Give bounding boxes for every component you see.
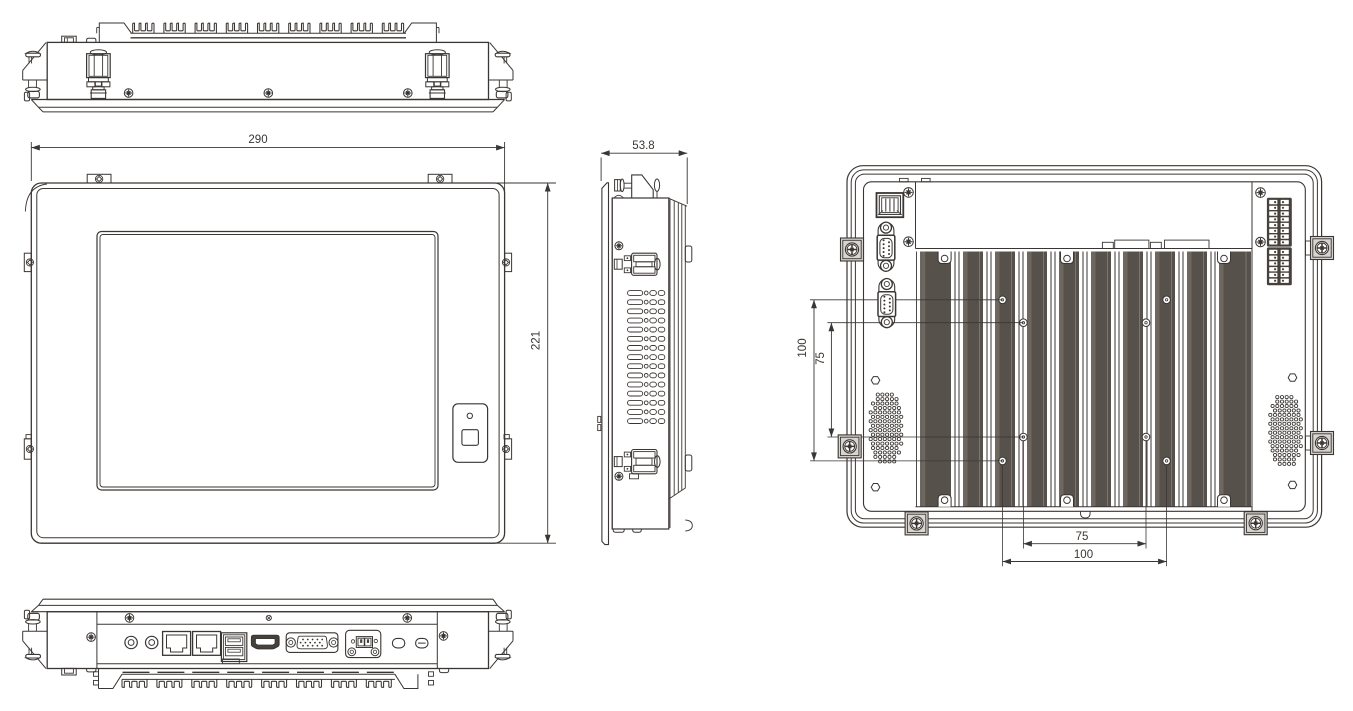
- svg-text:75: 75: [815, 352, 827, 365]
- svg-text:221: 221: [531, 331, 543, 350]
- svg-text:100: 100: [797, 338, 809, 357]
- svg-text:100: 100: [1074, 549, 1093, 561]
- svg-text:75: 75: [1076, 531, 1089, 543]
- svg-text:290: 290: [248, 134, 267, 146]
- svg-text:53.8: 53.8: [632, 140, 654, 152]
